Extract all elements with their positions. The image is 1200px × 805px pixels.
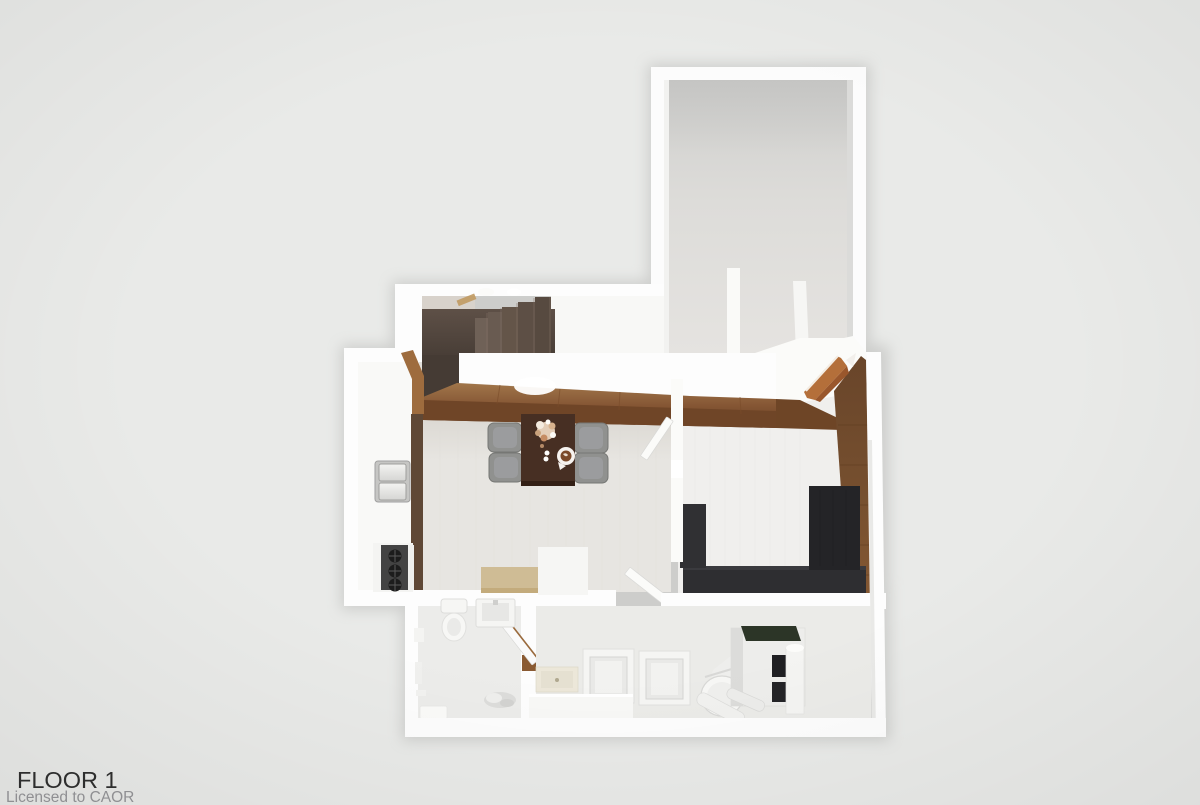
- svg-text:Licensed to CAOR: Licensed to CAOR: [6, 789, 134, 805]
